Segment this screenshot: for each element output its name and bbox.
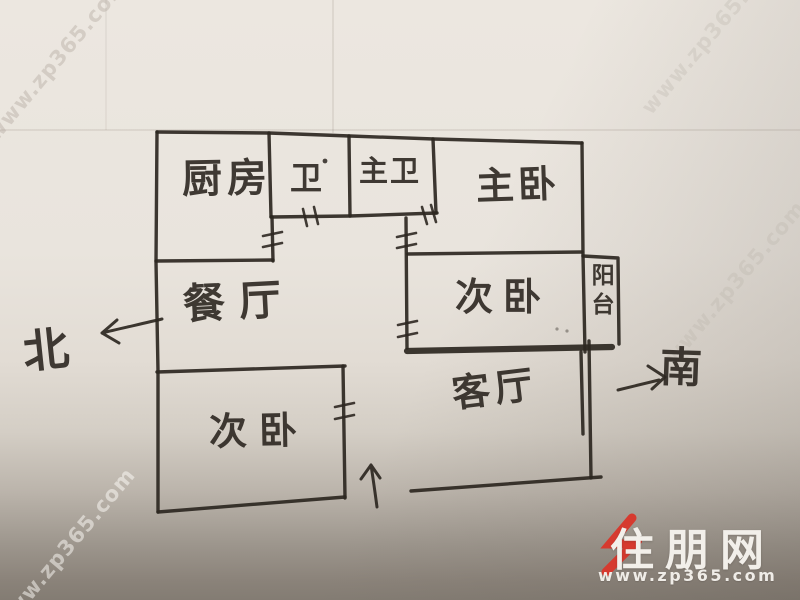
room-label-master-bath: 主卫 xyxy=(359,156,421,186)
room-label-kitchen: 厨房 xyxy=(182,157,273,201)
north-arrow xyxy=(102,319,162,343)
floorplan-photo: www.zp365.com www.zp365.com www.zp365.co… xyxy=(0,0,800,600)
wall-masterbedroom-bottom xyxy=(408,252,582,254)
wall-left xyxy=(156,132,158,512)
ink-dot xyxy=(555,327,558,330)
wall-bath-bottom xyxy=(271,213,437,217)
wall-living-right xyxy=(589,341,591,478)
room-label-bath: 卫 xyxy=(290,162,322,196)
room-label-dining: 餐厅 xyxy=(182,277,296,327)
wall-bedroom3-bottom xyxy=(158,497,345,512)
brand-url: www.zp365.com xyxy=(598,566,777,585)
room-label-balcony: 阳台 xyxy=(588,263,612,321)
wall-kitchen-door-jamb xyxy=(272,217,273,261)
wall-living-bottom xyxy=(411,477,601,491)
floorplan-drawing xyxy=(0,0,800,600)
entrance-arrow xyxy=(361,465,380,507)
south-arrow xyxy=(618,366,665,390)
room-label-second-bedroom-right: 次卧 xyxy=(455,278,551,318)
compass-north-label: 北 xyxy=(21,324,72,377)
wall-bath-divider xyxy=(349,136,350,216)
wall-living-window-inner xyxy=(581,352,583,434)
wall-top xyxy=(157,132,582,143)
compass-south-label: 南 xyxy=(659,345,703,391)
ink-dot xyxy=(565,329,568,332)
room-label-master-bedroom: 主卧 xyxy=(475,165,560,208)
wall-kitchen-bottom xyxy=(156,260,273,261)
ink-dot xyxy=(323,159,328,164)
room-label-second-bedroom-left: 次卧 xyxy=(209,411,310,453)
wall-bedroom3-top xyxy=(157,366,345,372)
wall-bedroom2-left xyxy=(406,218,407,348)
wall-bedroom3-right xyxy=(343,366,345,498)
wall-masterbath-right xyxy=(433,139,436,213)
wall-right-outer xyxy=(582,143,585,352)
